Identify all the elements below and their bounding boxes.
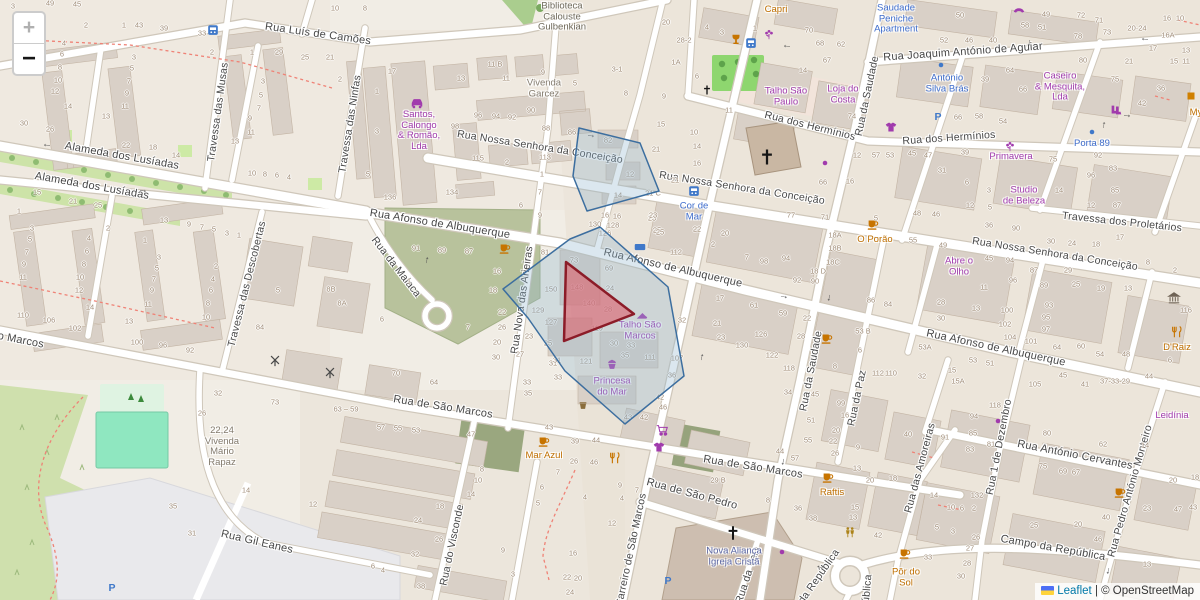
house-number: 6	[858, 346, 862, 355]
house-number: 3	[30, 224, 34, 233]
windmill-icon	[268, 353, 282, 367]
house-number: 14	[172, 151, 180, 160]
cup-icon	[1113, 485, 1127, 499]
house-number: 21	[326, 53, 334, 62]
house-number: 84	[256, 323, 264, 332]
sq-icon	[1184, 89, 1198, 103]
house-number: 51	[807, 416, 815, 425]
house-number: 32	[918, 372, 926, 381]
street-label: Rua da Paz	[845, 369, 869, 427]
house-number: 6	[1168, 356, 1172, 365]
house-number: 1	[375, 87, 379, 96]
house-number: 45	[811, 390, 819, 399]
house-number: 4	[62, 39, 66, 48]
house-number: 14	[1055, 186, 1063, 195]
house-number: 8	[766, 496, 770, 505]
house-number: 45	[1059, 371, 1067, 380]
house-number: 12	[608, 519, 616, 528]
house-number: 18	[149, 143, 157, 152]
house-number: 26	[46, 125, 54, 134]
house-number: 150	[545, 285, 558, 294]
poi-label: Capri	[765, 5, 788, 16]
poi-label: Porta 89	[1074, 139, 1110, 150]
street-label: Rua de São Pedro	[645, 476, 739, 512]
map-canvas[interactable]: Rua Luís de CamõesRua Joaquim António de…	[0, 0, 1200, 600]
house-number: 3	[157, 253, 161, 262]
house-number: 66	[1019, 85, 1027, 94]
house-number: 63 – 59	[333, 405, 358, 414]
house-number: 4	[583, 493, 587, 502]
poi-label: Raftis	[820, 488, 844, 499]
house-number: 2	[1173, 266, 1177, 275]
house-number: 33	[198, 29, 206, 38]
house-number: 20	[1074, 520, 1082, 529]
street-label: Rua da Malaca	[369, 234, 424, 299]
house-number: 73	[570, 256, 578, 265]
street-label: Rua Nossa Senhora da Conceição	[658, 169, 826, 207]
house-number: 9	[618, 481, 622, 490]
street-label: Rua das Amoreiras	[902, 422, 938, 515]
oneway-arrow: →	[137, 184, 148, 196]
house-number: 9	[541, 68, 545, 77]
street-label: Rua Afonso de Albuquerque	[925, 327, 1066, 368]
house-number: 10	[690, 128, 698, 137]
dot-icon	[1085, 125, 1099, 139]
house-number: 18	[889, 474, 897, 483]
house-number: 47	[924, 151, 932, 160]
house-number: 8	[833, 362, 837, 371]
house-number: 11	[725, 106, 733, 115]
house-number: 72	[1077, 11, 1085, 20]
cupcake-icon	[605, 357, 619, 371]
house-number: 33	[554, 373, 562, 382]
goblet-icon	[729, 33, 743, 47]
house-number: 1	[122, 21, 126, 30]
house-number: 101	[1025, 337, 1038, 346]
house-number: 7	[745, 253, 749, 262]
house-number: 21 C	[645, 189, 661, 198]
house-number: 18A	[828, 231, 841, 240]
flower-icon	[1003, 139, 1017, 153]
house-number: 53 B	[855, 327, 870, 336]
attribution-bar: Leaflet | © OpenStreetMap	[1035, 583, 1200, 600]
house-number: 25	[656, 228, 664, 237]
house-number: 5	[259, 91, 263, 100]
house-number: 30	[492, 353, 500, 362]
street-label: Travessa das Musas	[205, 62, 231, 163]
oneway-arrow: →	[42, 140, 53, 152]
street-label: Rua Nossa Senhora da Conceição	[456, 128, 624, 166]
shirt-icon	[652, 441, 666, 455]
house-number: 87	[465, 247, 473, 256]
house-number: 5	[276, 286, 280, 295]
house-number: 5	[212, 225, 216, 234]
house-number: 15	[1170, 57, 1178, 66]
map-tiles	[0, 0, 1200, 600]
house-number: 8	[624, 89, 628, 98]
croissant-icon	[1012, 3, 1026, 17]
house-number: 15	[33, 188, 41, 197]
house-number: 44	[1145, 372, 1153, 381]
house-number: 43	[1189, 503, 1197, 512]
house-number: 44	[776, 447, 784, 456]
poi-label: BibliotecaCalousteGulbenkian	[538, 1, 586, 33]
house-number: 9	[22, 260, 26, 269]
house-number: 3	[225, 229, 229, 238]
house-number: 96	[1009, 276, 1017, 285]
house-number: 22	[803, 314, 811, 323]
house-number: 25	[94, 201, 102, 210]
house-number: 11	[1182, 57, 1190, 66]
house-number: 100	[131, 338, 144, 347]
house-number: 85	[1111, 186, 1119, 195]
house-number: 46	[590, 458, 598, 467]
street-label: Rua de São Marcos	[392, 393, 493, 421]
house-number: 47	[1174, 505, 1182, 514]
house-number: 36	[794, 504, 802, 513]
cup-icon	[866, 217, 880, 231]
house-number: 8	[1146, 258, 1150, 267]
house-number: 6	[695, 72, 699, 81]
house-number: 22	[498, 308, 506, 317]
forkknife-icon	[1170, 325, 1184, 339]
leaflet-link[interactable]: Leaflet	[1057, 585, 1092, 597]
house-number: 15	[657, 120, 665, 129]
zoom-in-button[interactable]: +	[14, 13, 44, 43]
house-number: 71	[1095, 16, 1103, 25]
house-number: 26	[570, 457, 578, 466]
house-number: 28	[797, 332, 805, 341]
house-number: 6	[60, 50, 64, 59]
zoom-out-button[interactable]: −	[14, 43, 44, 74]
house-number: 28	[604, 305, 612, 314]
house-number: 43	[135, 21, 143, 30]
house-number: 1	[250, 48, 254, 57]
house-number: 64	[1006, 66, 1014, 75]
street-label: Rua Pedro António Monteiro	[1105, 423, 1154, 558]
poi-label: My	[1190, 108, 1200, 119]
house-number: 35	[621, 351, 629, 360]
street-label: Alameda dos Lusíadas	[64, 140, 180, 172]
house-number: 2	[106, 224, 110, 233]
house-number: 3-1	[612, 65, 623, 74]
house-number: 84	[884, 300, 892, 309]
house-number: 2	[972, 504, 976, 513]
poi-label: Nova AliançaIgreja Cristã	[706, 547, 761, 568]
house-number: 7	[25, 248, 29, 257]
house-number: 17	[1116, 233, 1124, 242]
cup-icon	[898, 546, 912, 560]
house-number: 127	[545, 318, 558, 327]
house-number: 12	[1087, 201, 1095, 210]
house-number: 24	[606, 284, 614, 293]
house-number: 5	[155, 264, 159, 273]
oneway-arrow: →	[585, 129, 596, 141]
house-number: 42	[1138, 99, 1146, 108]
poi-label: Leidínia	[1155, 411, 1188, 422]
house-number: 83	[1109, 164, 1117, 173]
house-number: 93	[1045, 301, 1053, 310]
house-number: 14	[614, 191, 622, 200]
poi-label: Loja doCosta	[827, 85, 858, 106]
house-number: 13	[125, 317, 133, 326]
house-number: 33	[627, 341, 635, 350]
house-number: 102	[69, 324, 82, 333]
house-number: 66	[819, 178, 827, 187]
house-number: 75	[1111, 75, 1119, 84]
house-number: 58	[1021, 21, 1029, 30]
house-number: 48	[1122, 350, 1130, 359]
poi-label: VivendaGarcez	[527, 79, 561, 100]
house-number: 5	[935, 523, 939, 532]
house-number: 50	[956, 11, 964, 20]
house-number: 6	[85, 247, 89, 256]
bus-icon	[206, 23, 220, 37]
poi-label: Mar Azul	[526, 451, 563, 462]
house-number: 73	[271, 398, 279, 407]
street-label: Carreiro de São Marcos	[613, 492, 649, 600]
house-number: 86	[867, 296, 875, 305]
poi-label: Abre oOlho	[945, 257, 973, 278]
street-label: Alameda dos Lusíadas	[34, 170, 150, 202]
osm-link[interactable]: © OpenStreetMap	[1101, 585, 1194, 597]
house-number: 31	[549, 359, 557, 368]
house-number: 46	[659, 403, 667, 412]
house-number: 31	[938, 166, 946, 175]
oneway-arrow: →	[778, 456, 791, 468]
house-number: 30	[937, 314, 945, 323]
house-number: 122	[766, 351, 779, 360]
house-number: 39	[571, 437, 579, 446]
cross-icon	[757, 147, 777, 167]
house-number: 16	[841, 411, 849, 420]
house-number: 112	[670, 248, 682, 257]
house-number: 32	[411, 550, 419, 559]
house-number: 26	[435, 535, 443, 544]
house-number: 12	[966, 201, 974, 210]
house-number: 29	[1064, 266, 1072, 275]
dot-icon	[934, 58, 948, 72]
house-number: 11	[121, 102, 129, 111]
hotel-icon	[633, 240, 647, 254]
house-number: 45	[73, 0, 81, 9]
house-number: 12	[51, 87, 59, 96]
house-number: 87	[1030, 266, 1038, 275]
house-number: 3	[11, 2, 15, 11]
house-number: 130	[589, 220, 602, 229]
house-number: 90	[1012, 224, 1020, 233]
poi-label: Cor deMar	[680, 202, 709, 223]
house-number: 116	[1180, 306, 1192, 315]
street-label: Rua 1 de Dezembro	[984, 398, 1014, 496]
house-number: 5	[988, 203, 992, 212]
house-number: 67	[823, 56, 831, 65]
house-number: 58	[975, 112, 983, 121]
house-number: 106	[43, 316, 56, 325]
house-number: 10	[947, 503, 955, 512]
house-number: 10	[1176, 14, 1184, 23]
overlay-layer	[0, 0, 1200, 600]
house-number: 9	[856, 443, 860, 452]
house-number: 46	[965, 36, 973, 45]
house-number: 45	[908, 149, 916, 158]
house-number: 83	[966, 445, 974, 454]
house-number: 26	[831, 449, 839, 458]
house-number: 13	[102, 112, 110, 121]
house-number: 25	[1072, 280, 1080, 289]
house-number: 82	[604, 136, 612, 145]
house-number: 1	[17, 207, 21, 216]
house-number: 40	[904, 430, 912, 439]
house-number: 30	[957, 572, 965, 581]
house-number: 77	[787, 211, 795, 220]
house-number: 148	[571, 283, 584, 292]
house-number: 46	[932, 210, 940, 219]
house-number: 14	[64, 102, 72, 111]
house-number: 39	[981, 75, 989, 84]
house-number: 20	[662, 18, 670, 27]
boots-icon	[1109, 103, 1123, 117]
house-number: 29	[275, 48, 283, 57]
street-label: Rua do Visconde	[438, 503, 467, 586]
house-number: 85	[969, 429, 977, 438]
house-number: 70	[805, 26, 813, 35]
house-number: 15	[948, 366, 956, 375]
house-number: 7	[257, 104, 261, 113]
street-label: Rua Gil Eanes	[220, 528, 294, 556]
house-number: 13	[972, 304, 980, 313]
house-number: 98	[451, 122, 459, 131]
street-label: Rua de São Marcos	[702, 453, 803, 481]
house-number: 71	[821, 213, 829, 222]
house-number: 13	[231, 137, 239, 146]
poi-label: 22,24VivendaMárioRapaz	[205, 426, 239, 468]
house-number: 7	[538, 188, 542, 197]
geojson-polygon-sao-marcos[interactable]	[503, 227, 684, 424]
house-number: 92	[1094, 151, 1102, 160]
house-number: 47	[467, 430, 475, 439]
triangle-marker[interactable]	[564, 262, 634, 341]
house-number: 88	[542, 124, 550, 133]
house-number: 20	[721, 229, 729, 238]
street-label: Rua Luís de Camões	[264, 21, 372, 48]
house-number: 20·24	[1127, 24, 1146, 33]
house-number: 2	[210, 48, 214, 57]
house-number: 4	[620, 494, 624, 503]
house-number: 73	[1103, 28, 1111, 37]
house-number: 22	[693, 225, 701, 234]
house-number: 115	[472, 154, 484, 163]
house-number: 12	[853, 151, 861, 160]
house-number: 28-2	[676, 36, 691, 45]
house-number: 1	[237, 231, 241, 240]
house-number: 107	[671, 354, 684, 363]
house-number: 10	[202, 313, 210, 322]
house-number: 15A	[951, 377, 964, 386]
house-number: 10	[248, 169, 256, 178]
house-number: 5	[366, 170, 370, 179]
house-number: 16	[493, 267, 501, 276]
poi-label: Princesado Mar	[594, 377, 631, 398]
parking-icon: P	[105, 580, 119, 594]
house-number: 81	[541, 248, 549, 257]
house-number: 14	[930, 491, 938, 500]
house-number: 38	[417, 582, 425, 591]
street-label: Rua dos Hermínios	[763, 109, 856, 143]
house-number: 36	[668, 371, 676, 380]
oneway-arrow: →	[1140, 34, 1151, 46]
house-number: 51	[1038, 23, 1046, 32]
house-number: 13	[1143, 560, 1151, 569]
house-number: 45	[985, 254, 993, 263]
house-number: 5	[874, 214, 878, 223]
house-number: 22	[563, 573, 571, 582]
house-number: 3	[511, 570, 515, 579]
house-number: 6	[965, 178, 969, 187]
poi-label: Talho SãoPaulo	[765, 87, 807, 108]
house-number: 102	[999, 320, 1012, 329]
house-number: 18	[1191, 473, 1199, 482]
house-number: 31	[553, 356, 561, 365]
house-number: 8	[82, 260, 86, 269]
house-number: 3	[132, 53, 136, 62]
house-number: 21	[652, 145, 660, 154]
house-number: 10	[474, 476, 482, 485]
house-number: 111	[644, 353, 655, 362]
house-number: 96	[159, 341, 167, 350]
poi-label: Pôr doSol	[892, 568, 920, 589]
house-number: 48	[913, 209, 921, 218]
house-number: 16	[693, 159, 701, 168]
house-number: 20	[1169, 476, 1177, 485]
house-number: 3	[951, 527, 955, 536]
house-number: 9	[187, 220, 191, 229]
house-number: 13	[1182, 46, 1190, 55]
house-number: 21	[69, 197, 77, 206]
dot-icon	[775, 545, 789, 559]
house-number: 32	[214, 389, 222, 398]
house-number: 13	[853, 464, 861, 473]
house-number: 7	[200, 223, 204, 232]
poi-label: D'Raiz	[1163, 343, 1191, 354]
house-number: 10	[76, 273, 84, 282]
house-number: 126	[599, 229, 612, 238]
dot-icon	[818, 156, 832, 170]
house-number: 10	[54, 76, 62, 85]
house-number: 21	[671, 176, 679, 185]
house-number: 6	[540, 483, 544, 492]
street-label: São Marcos	[0, 327, 45, 350]
house-number: 30	[1047, 237, 1055, 246]
house-number: 25	[544, 339, 552, 348]
map-labels-layer: Rua Luís de CamõesRua Joaquim António de…	[0, 0, 1200, 600]
house-number: 57	[872, 151, 880, 160]
house-number: 69	[1059, 467, 1067, 476]
house-number: 23	[649, 211, 657, 220]
house-number: 64	[430, 378, 438, 387]
geojson-polygon-conceicao[interactable]	[573, 128, 659, 211]
house-number: 7	[152, 275, 156, 284]
house-number: 60	[1077, 342, 1085, 351]
house-number: 25	[653, 226, 661, 235]
house-number: 16	[569, 549, 577, 558]
poi-label: AntónioSilva Brás	[926, 74, 969, 95]
house-number: 26	[972, 533, 980, 542]
house-number: 78	[1074, 32, 1082, 41]
house-number: 33	[523, 378, 531, 387]
house-number: 22	[829, 437, 837, 446]
oneway-arrow: →	[1103, 565, 1116, 577]
